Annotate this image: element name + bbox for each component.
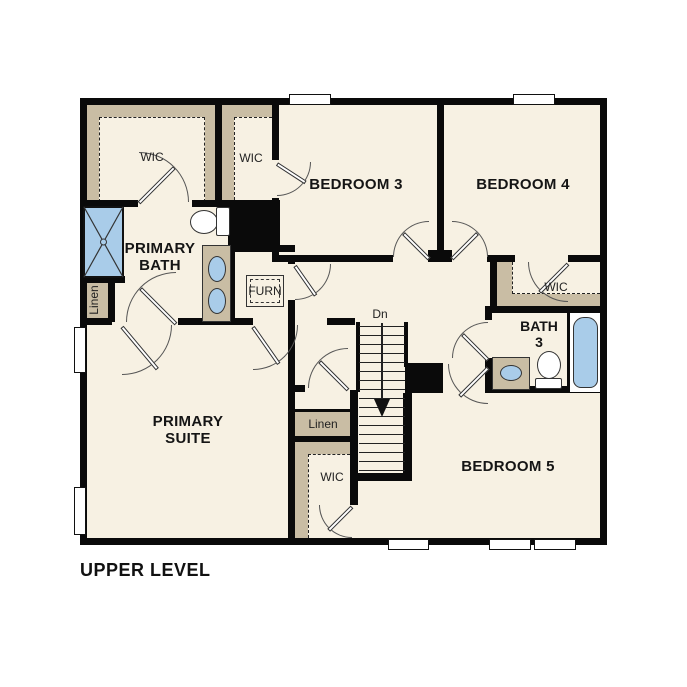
wall-segment xyxy=(568,255,600,262)
primary-suite-label: PRIMARY SUITE xyxy=(138,413,238,447)
wall-segment xyxy=(485,306,600,313)
stair-tread xyxy=(359,452,405,453)
bedroom3-label: BEDROOM 3 xyxy=(276,176,436,193)
stair-down-arrow xyxy=(374,399,390,417)
window xyxy=(289,94,331,105)
stair-tread xyxy=(359,443,405,444)
toilet-tank xyxy=(216,207,230,236)
furnace-label: FURN xyxy=(247,285,283,298)
wic-bedroom5-label: WIC xyxy=(302,471,362,484)
stairs-dn-label: Dn xyxy=(366,308,394,321)
window xyxy=(513,94,555,105)
wall-segment xyxy=(228,245,295,252)
stair-center-line xyxy=(381,323,383,401)
wall-segment xyxy=(288,255,295,264)
toilet-tank xyxy=(535,378,562,389)
wall-segment xyxy=(350,390,358,505)
wall-segment xyxy=(295,409,350,412)
sink xyxy=(208,288,226,314)
linen-primary-label: Linen xyxy=(88,273,101,327)
wall-chunk xyxy=(405,363,443,393)
window xyxy=(388,539,429,550)
wall-segment xyxy=(356,322,360,392)
sink xyxy=(500,365,522,381)
wall-segment xyxy=(295,436,350,442)
bedroom4-label: BEDROOM 4 xyxy=(443,176,603,193)
toilet xyxy=(190,210,218,234)
window xyxy=(489,539,531,550)
wic-primary-label: WIC xyxy=(112,151,192,164)
sink xyxy=(208,256,226,282)
floorplan-page: { "title": "UPPER LEVEL", "colors": { "f… xyxy=(0,0,687,687)
wall-segment xyxy=(428,250,452,262)
window xyxy=(74,487,86,535)
wic-bedroom3-label: WIC xyxy=(221,152,281,165)
wall-chunk xyxy=(228,202,280,247)
plan-title: UPPER LEVEL xyxy=(80,560,211,581)
wall-segment xyxy=(108,283,115,322)
wall-segment xyxy=(327,318,355,325)
wall-segment xyxy=(490,255,497,313)
bath3-label: BATH 3 xyxy=(516,318,562,350)
wall-segment xyxy=(295,385,305,392)
wall-segment xyxy=(485,313,492,320)
stair-tread xyxy=(359,461,405,462)
linen-primary-label-wrap: Linen xyxy=(88,273,102,327)
wic-bedroom4-label: WIC xyxy=(516,281,596,294)
primary-bath-label: PRIMARY BATH xyxy=(118,240,202,274)
stair-tread xyxy=(359,434,405,435)
bedroom5-label: BEDROOM 5 xyxy=(418,458,598,475)
bathtub xyxy=(573,317,598,388)
wall-segment xyxy=(272,98,279,160)
toilet xyxy=(537,351,561,379)
wall-segment xyxy=(600,98,607,545)
stair-tread xyxy=(359,425,405,426)
stair-tread xyxy=(359,470,405,471)
window xyxy=(74,327,86,373)
window xyxy=(534,539,576,550)
linen-hall-label: Linen xyxy=(297,418,349,431)
